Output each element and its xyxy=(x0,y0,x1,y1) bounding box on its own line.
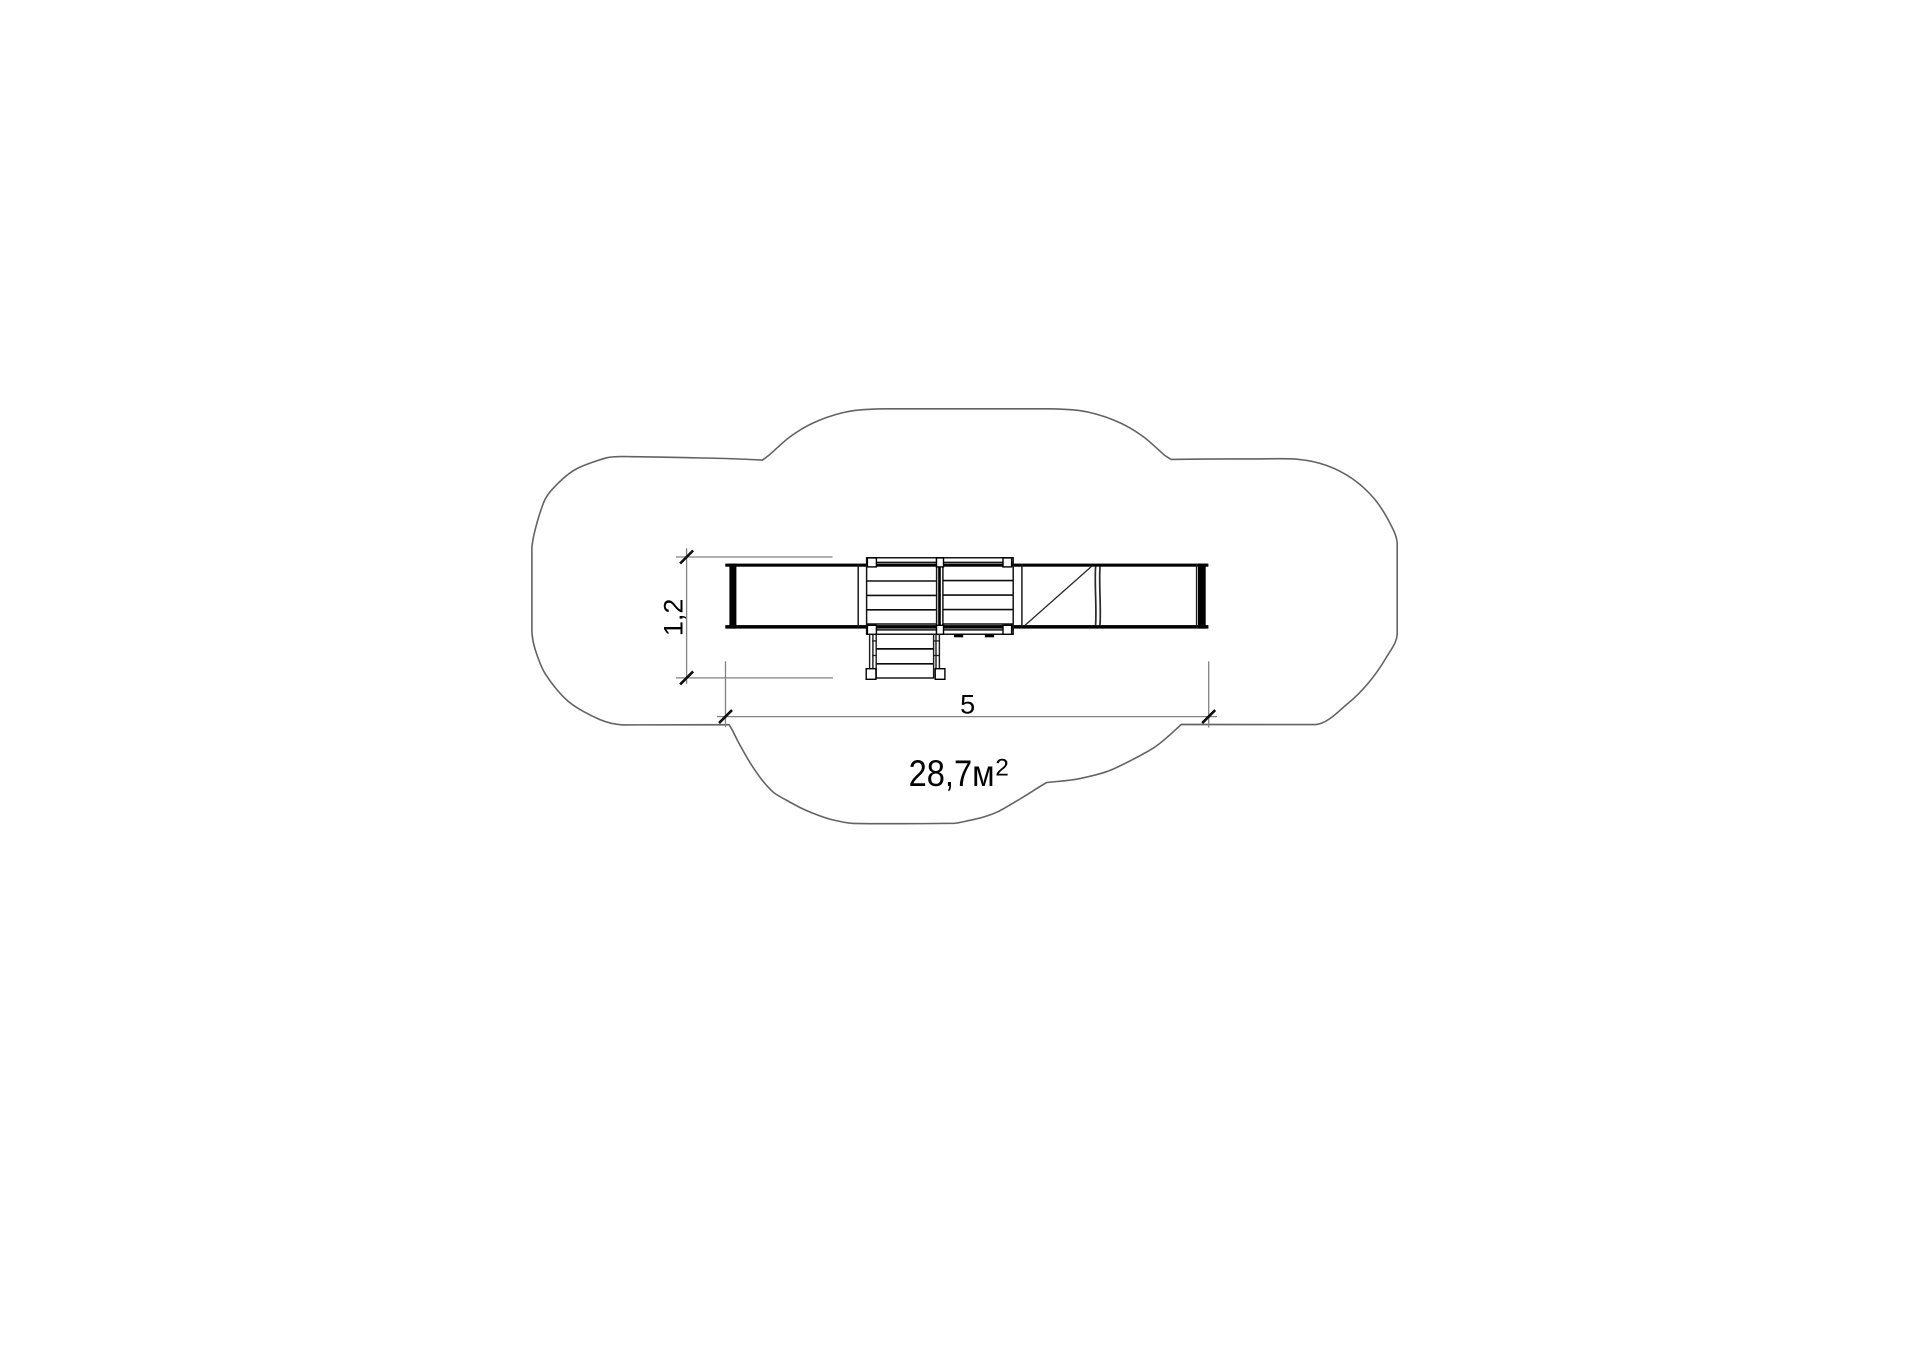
svg-text:2: 2 xyxy=(995,755,1009,782)
svg-text:1,2: 1,2 xyxy=(659,599,689,637)
svg-text:5: 5 xyxy=(960,690,975,720)
svg-text:28,7м: 28,7м xyxy=(909,753,995,794)
